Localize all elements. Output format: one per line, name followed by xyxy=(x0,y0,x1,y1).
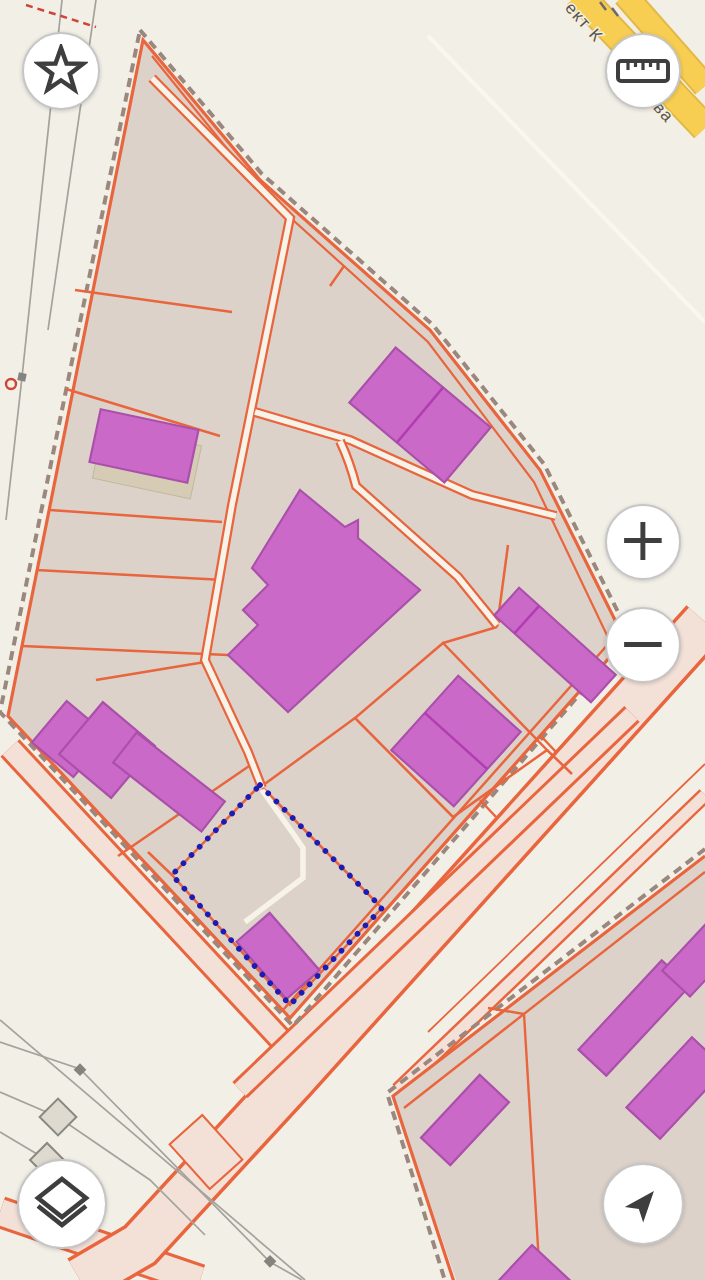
plus-icon: + xyxy=(618,509,668,569)
zoom-in-button[interactable]: + xyxy=(605,504,681,580)
minus-icon: − xyxy=(618,612,668,672)
map-app: ект К ава + − xyxy=(0,0,705,1280)
layers-icon xyxy=(33,1175,91,1233)
map-canvas[interactable]: ект К ава xyxy=(0,0,705,1280)
measure-button[interactable] xyxy=(605,33,681,109)
locate-button[interactable] xyxy=(602,1163,684,1245)
favorites-button[interactable] xyxy=(22,32,100,110)
navigation-arrow-icon xyxy=(620,1181,666,1227)
layers-button[interactable] xyxy=(17,1159,107,1249)
ruler-icon xyxy=(614,51,672,91)
zoom-out-button[interactable]: − xyxy=(605,607,681,683)
star-icon xyxy=(34,44,88,98)
